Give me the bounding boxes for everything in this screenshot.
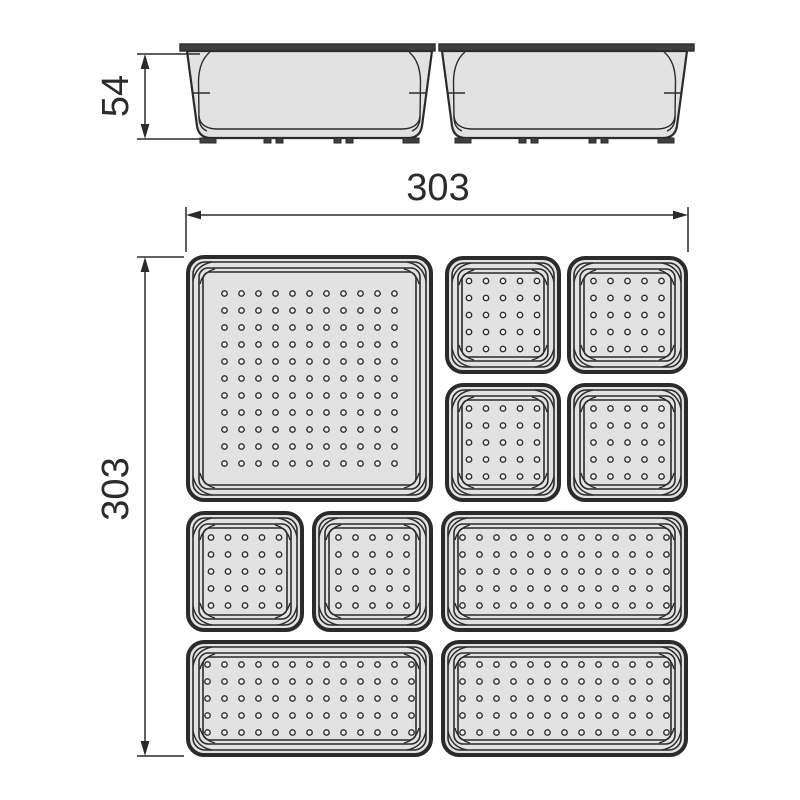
arrowhead-down-icon <box>141 741 150 756</box>
plan-small-square-tray-5 <box>188 513 302 630</box>
tray-foot <box>455 138 471 143</box>
arrowhead-left-icon <box>186 211 201 220</box>
side-view-tray-2 <box>439 44 694 143</box>
tray-foot <box>531 138 538 143</box>
arrowhead-up-icon <box>141 54 150 69</box>
tray-body <box>442 51 687 138</box>
tray-foot <box>200 138 216 143</box>
plan-wide-tray-3 <box>443 642 686 755</box>
side-elevation-view <box>180 44 694 143</box>
tray-foot <box>334 138 341 143</box>
tray-foot <box>403 138 419 143</box>
plan-wide-tray-1 <box>443 513 686 630</box>
tray-rim <box>439 44 694 51</box>
height-dimension: 54 <box>95 54 200 139</box>
arrowhead-right-icon <box>673 211 688 220</box>
side-view-tray-1 <box>180 44 435 143</box>
tray-foot <box>589 138 596 143</box>
tray-foot <box>264 138 271 143</box>
tray-foot <box>601 138 608 143</box>
arrowhead-down-icon <box>141 124 150 139</box>
tray-foot <box>276 138 283 143</box>
tray-rim <box>180 44 435 51</box>
depth-dimension-label: 303 <box>95 457 137 520</box>
plan-large-square-tray <box>188 257 431 500</box>
width-dimension-label: 303 <box>406 167 469 209</box>
depth-dimension: 303 <box>95 257 184 756</box>
tray-foot <box>346 138 353 143</box>
tray-foot <box>519 138 526 143</box>
plan-wide-tray-2 <box>188 642 431 755</box>
technical-drawing-page: 54 303 303 <box>0 0 800 800</box>
tray-foot <box>658 138 674 143</box>
plan-small-square-tray-2 <box>569 258 686 372</box>
tray-body <box>187 51 432 138</box>
plan-small-square-tray-6 <box>314 513 431 630</box>
plan-small-square-tray-4 <box>569 385 686 500</box>
plan-top-view <box>188 257 686 755</box>
height-dimension-label: 54 <box>95 75 137 117</box>
plan-small-square-tray-1 <box>447 258 559 372</box>
plan-small-square-tray-3 <box>447 385 559 500</box>
technical-drawing: 54 303 303 <box>0 0 800 800</box>
arrowhead-up-icon <box>141 257 150 272</box>
width-dimension: 303 <box>186 167 688 252</box>
